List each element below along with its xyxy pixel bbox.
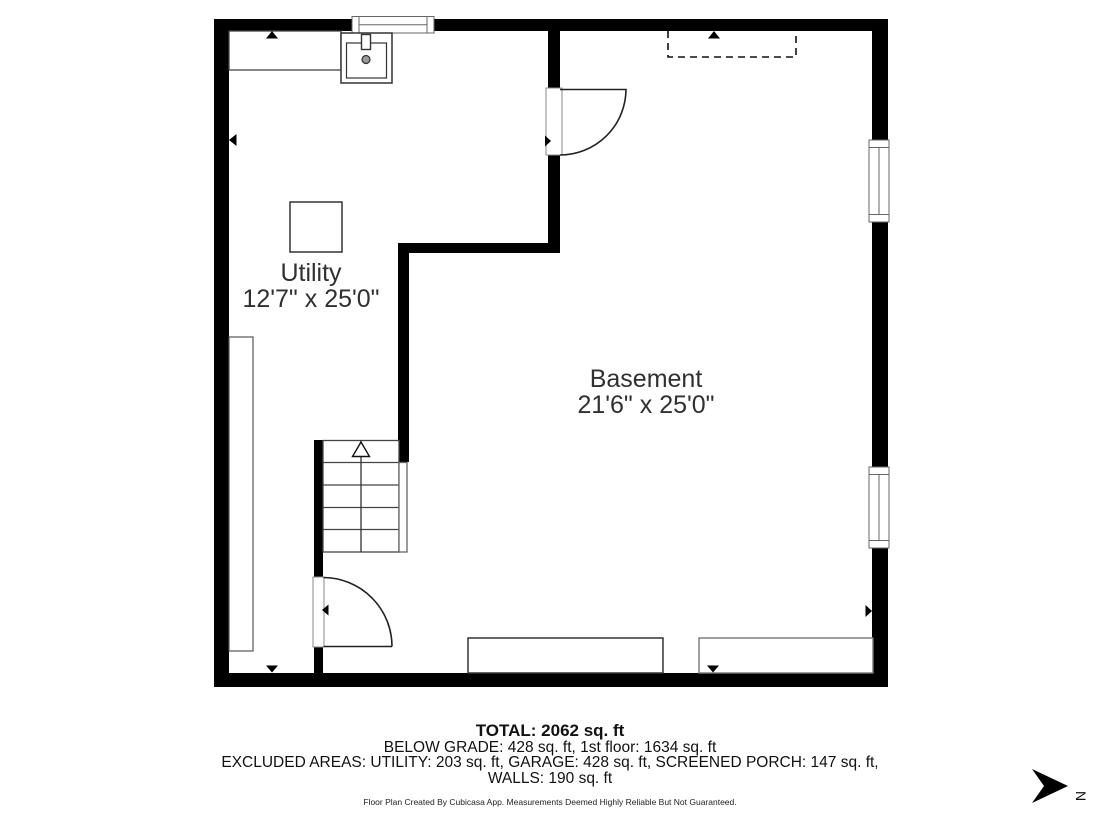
room-label-basement: Basement 21'6" x 25'0" [577,366,714,418]
room-label-utility: Utility 12'7" x 25'0" [242,260,379,312]
window-top [352,17,434,34]
window-right-lower [869,467,889,548]
faucet-icon [362,35,371,50]
counter-top-wall [229,31,341,70]
wall-top [214,19,888,31]
wall-bottom [214,673,888,687]
room-dimensions: 12'7" x 25'0" [242,286,379,312]
wall-stair-east [398,243,409,462]
door-leaf-and-swing [560,90,626,156]
water-heater [290,202,342,252]
marker-right-icon [866,605,873,617]
wall-left [214,19,229,687]
marker-up-icon [708,31,720,39]
wall-stair-west-upper [314,440,323,577]
summary-total: TOTAL: 2062 sq. ft [0,722,1100,739]
floor-plan-canvas: N [0,0,1100,825]
room-name: Basement [577,366,714,392]
cabinet-bottom-right [699,638,873,673]
area-summary: TOTAL: 2062 sq. ft BELOW GRADE: 428 sq. … [0,722,1100,786]
door-opening [313,577,324,647]
wall-right [872,19,888,687]
summary-below-grade: BELOW GRADE: 428 sq. ft, 1st floor: 1634… [0,740,1100,755]
interior-walls [314,31,560,673]
utility-sink [341,33,392,83]
summary-walls: WALLS: 190 sq. ft [0,771,1100,786]
door-opening [546,88,562,155]
door-utility-basement [546,88,626,155]
stair-edge-strip [399,463,407,553]
wall-stair-west-lower [314,647,323,673]
room-dimensions: 21'6" x 25'0" [577,392,714,418]
cabinet-bottom-left [468,638,663,673]
drain-icon [362,56,370,64]
door-leaf-and-swing [324,578,393,647]
staircase [323,441,407,553]
summary-excluded-areas: EXCLUDED AREAS: UTILITY: 203 sq. ft, GAR… [0,755,1100,770]
floor-plan-page: N Utility 12'7" x 25'0" Basement 21'6" x… [0,0,1100,825]
marker-left-icon [229,134,237,146]
window-right-upper [869,140,889,222]
wall-utility-south [398,243,560,253]
dashed-overhead-outline [668,31,796,57]
marker-down-icon [266,666,278,673]
counter-left-wall [229,337,253,651]
room-name: Utility [242,260,379,286]
footer-credit: Floor Plan Created By Cubicasa App. Meas… [0,797,1100,807]
